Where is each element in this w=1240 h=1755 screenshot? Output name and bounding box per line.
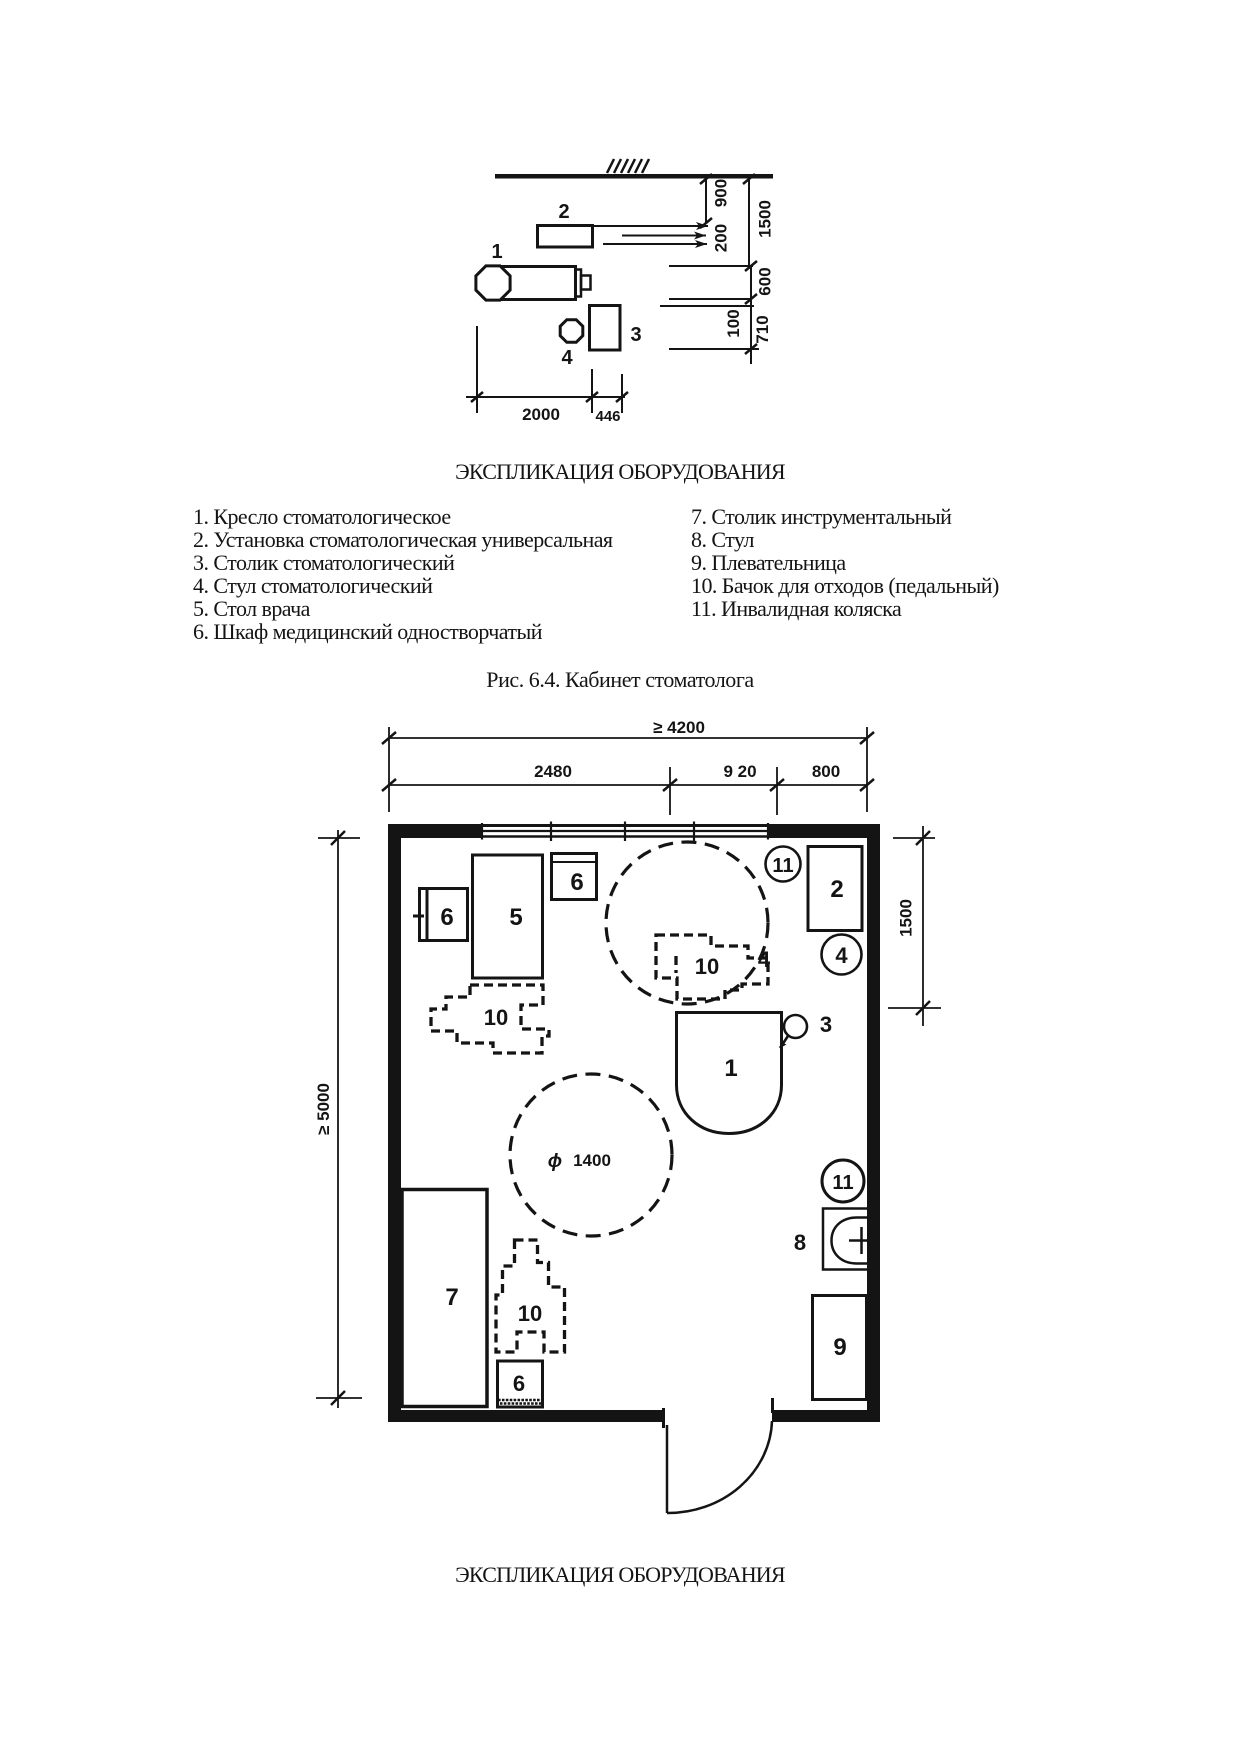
svg-text:6: 6 <box>513 1371 525 1396</box>
svg-text:10: 10 <box>695 954 719 979</box>
svg-text:1500: 1500 <box>756 200 775 238</box>
svg-text:2: 2 <box>830 876 843 903</box>
svg-text:8: 8 <box>794 1230 806 1255</box>
svg-text:710: 710 <box>753 315 772 343</box>
svg-text:4: 4 <box>835 943 848 968</box>
svg-text:4: 4 <box>561 347 573 369</box>
svg-text:9: 9 <box>833 1334 846 1361</box>
svg-text:3: 3 <box>820 1012 832 1037</box>
svg-text:100: 100 <box>724 309 743 337</box>
svg-text:10: 10 <box>518 1301 542 1326</box>
svg-text:446: 446 <box>595 408 620 425</box>
svg-text:3: 3 <box>630 324 641 346</box>
svg-text:9 20: 9 20 <box>723 762 756 781</box>
svg-text:2000: 2000 <box>522 405 560 424</box>
svg-text:600: 600 <box>756 267 775 295</box>
svg-text:11: 11 <box>832 1172 853 1194</box>
svg-text:1400: 1400 <box>573 1151 611 1170</box>
svg-text:11: 11 <box>772 855 793 877</box>
svg-text:ϕ: ϕ <box>548 1151 562 1172</box>
svg-text:900: 900 <box>712 179 731 207</box>
svg-text:5: 5 <box>509 904 522 931</box>
svg-text:2480: 2480 <box>534 762 572 781</box>
svg-text:≥ 4200: ≥ 4200 <box>653 718 705 737</box>
svg-text:10: 10 <box>484 1005 508 1030</box>
svg-text:200: 200 <box>712 224 731 252</box>
svg-text:4: 4 <box>758 947 771 972</box>
svg-text:6: 6 <box>440 904 453 931</box>
svg-text:1: 1 <box>491 241 502 263</box>
svg-text:1500: 1500 <box>897 899 916 937</box>
svg-text:2: 2 <box>558 201 569 223</box>
svg-text:≥ 5000: ≥ 5000 <box>314 1083 333 1135</box>
svg-text:1: 1 <box>724 1055 737 1082</box>
svg-text:800: 800 <box>812 762 840 781</box>
svg-text:6: 6 <box>570 869 583 896</box>
svg-text:7: 7 <box>445 1284 458 1311</box>
